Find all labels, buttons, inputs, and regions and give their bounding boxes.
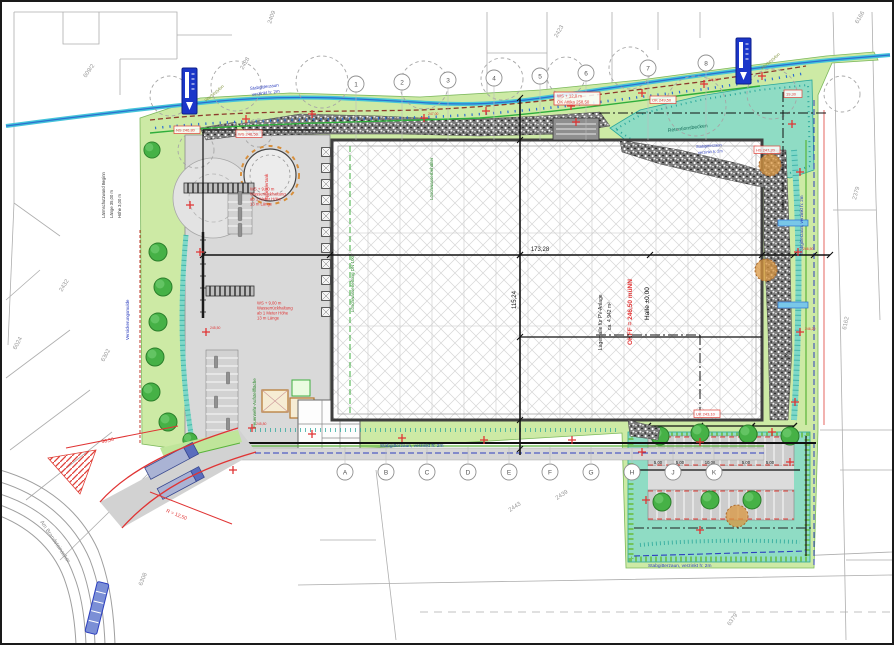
road-radius-label: R = 12,50 [165,508,188,522]
axis-label: B [384,470,388,477]
loading-dock [322,180,331,189]
parcel-label: 6024 [12,336,24,351]
hall-level-label: Halle ±0,00 [644,287,651,320]
existing-tree [726,505,748,527]
tree [653,493,671,511]
axis-label: 4 [492,76,496,83]
wall-note-line: Höhe 3,00 m [117,194,122,218]
red-note-line: 13 m Länge [250,202,273,207]
parcel-label: 2409 [267,9,277,24]
parking-stalls-lower [206,350,238,438]
main-height-dim: 115,24 [512,290,518,309]
axis-label: 5 [538,74,542,81]
pylon-sign-west [182,68,197,114]
axis-label: C [425,470,430,477]
parcel-label: 6162 [842,315,851,330]
hall-area-label: ca. 4.942 m² [607,302,613,330]
fire-line-label: Löschwasserleitung DN 100 [350,255,355,312]
axis-label: E [507,470,512,477]
culvert [778,302,808,308]
loading-dock [322,244,331,253]
axis-label: 1 [354,82,358,89]
parking-dim: 5,00 [654,460,663,465]
red-note-line: WS + 12,0 m [557,94,582,99]
parking-dim: 5,00 [676,460,685,465]
loading-dock [322,308,331,317]
red-box-label: WS 246,50 [238,132,259,137]
parcel-label: 609/2 [83,63,97,79]
level-value: 246,20 [805,327,815,331]
parking-dim: 5,00 [766,460,775,465]
axis-label: G [588,470,593,477]
ramp-lower [206,286,254,296]
tree [701,491,719,509]
loading-dock [322,276,331,285]
axis-label: 7 [646,66,650,73]
loading-dock [322,228,331,237]
axis-label: 8 [704,61,708,68]
red-box-label: NS 246,80 [176,128,196,133]
parking-stalls-upper [228,191,252,236]
parcel-label: 6302 [100,348,112,363]
red-box-label: HS 247,20 [756,148,776,153]
axis-label: J [671,470,674,477]
road-dim-label: 36,50 [101,437,115,446]
noise-wall-note: Lärmschutzwand Beginn Länge 35,00 m Höhe… [101,171,122,218]
level-value: 245,80 [256,422,266,426]
axis-label: 2 [400,80,404,87]
main-width-dim: 173,28 [531,247,550,253]
level-value: 246,80 [708,78,718,82]
parcel-label: 6166 [855,10,867,25]
fence-label-se: Stabgitterzaun, verzinkt h: 2m [648,563,711,569]
parking-dim: 5,00 [742,460,751,465]
loading-dock [322,260,331,269]
loading-dock [322,164,331,173]
parcel-label: 2423 [554,24,566,39]
tree [739,425,757,443]
axis-label: K [712,470,717,477]
parking-lot: 5,00 5,00 10,00 5,00 5,00 Stabgitterzaun… [628,423,812,569]
green-room [292,380,310,396]
red-box-label: UK 243,10 [696,412,716,417]
site-plan-drawing: 2409 2428 609/2 2423 6166 2379 6162 6302… [0,0,894,645]
parcel-label: 2428 [240,56,252,71]
red-box-label: 19,30 [786,92,797,97]
existing-tree [755,259,777,281]
strip-dim: 6,00 [784,351,789,360]
existing-tree [759,154,781,176]
parcel-label: 2432 [59,278,72,293]
wall-note-line: Lärmschutzwand Beginn [101,171,106,218]
loading-dock [322,212,331,221]
parcel-label: 2379 [852,185,861,200]
loading-dock [322,196,331,205]
warehouse-hall: Lagerhalle für PV-Anlage ca. 4.942 m² OK… [322,140,763,420]
axis-label: F [548,470,552,477]
parcel-label: 6308 [138,572,149,587]
fire-area-label: Feuerwehr-Aufstellfläche [252,378,257,428]
site-plan-page: 2409 2428 609/2 2423 6166 2379 6162 6302… [0,0,894,645]
loading-dock [322,148,331,157]
sprinkler-label: Löschwasserbehälter [429,157,434,200]
axis-label: 6 [584,71,588,78]
level-value: 245,50 [210,326,220,330]
traffic-island [48,450,96,494]
parcel-label: 6379 [727,612,740,627]
red-note-line: 13 m Länge [257,316,280,321]
fence-label-south: Stabgitterzaun, verzinkt h: 2m [380,443,443,449]
axis-label: A [343,470,348,477]
axis-label: H [630,470,635,477]
swale-label: Versickerungsmulde [125,299,130,340]
level-value: 246,50 [803,247,813,251]
hall-name-label: Lagerhalle für PV-Anlage [598,294,604,350]
pylon-sign-east [736,38,751,84]
red-note-block-c: WS + 12,0 m OK Attika 258,50 [554,92,600,105]
wall-note-line: Länge 35,00 m [109,190,114,218]
axis-label: 3 [446,78,450,85]
ramp-upper [184,183,254,193]
red-note-line: OK Attika 258,50 [557,100,590,105]
parcel-label: 2443 [508,501,523,514]
red-box-label: OK 249,50 [652,98,672,103]
loading-dock [322,292,331,301]
axis-label: D [466,470,471,477]
parcel-label: 2439 [555,489,570,502]
tree [743,491,761,509]
level-value: 247,00 [428,112,438,116]
